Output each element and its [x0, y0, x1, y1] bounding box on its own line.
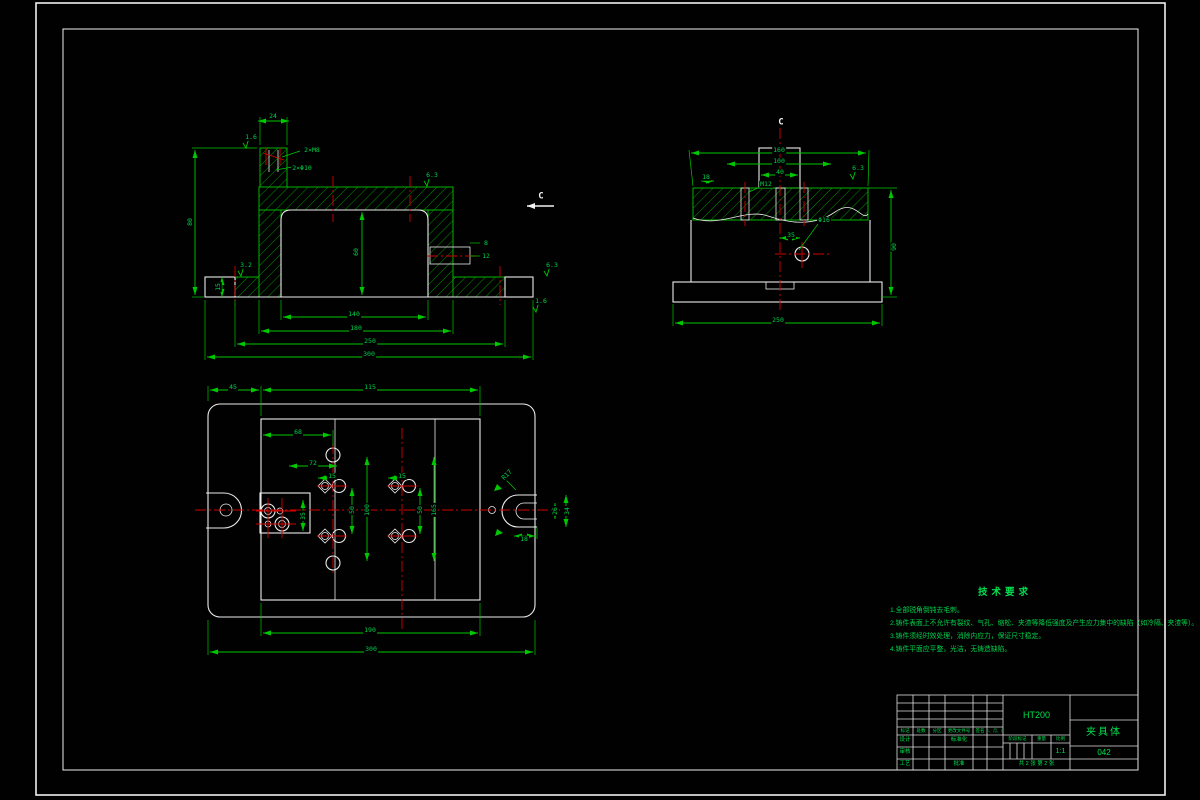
finish-mark	[494, 484, 502, 491]
dim-label: 24	[268, 113, 278, 120]
dim-label: 18	[519, 536, 529, 543]
dim-label: 35	[786, 232, 796, 239]
dim-label: 1.6	[244, 134, 258, 141]
dim-label: 140	[347, 311, 361, 318]
finish-mark	[495, 529, 503, 536]
dim-label: 50	[349, 505, 356, 515]
plate-section	[693, 188, 868, 220]
header-mark: 标记	[897, 727, 913, 735]
sheet-info: 共 2 张 第 2 张	[1003, 759, 1070, 770]
part-name-cell: 夹具体	[1070, 720, 1138, 746]
dim-label: 300	[364, 646, 378, 653]
dim-label: 8	[483, 240, 489, 247]
header-date: 年、月、日	[987, 727, 1003, 735]
plan-view	[195, 386, 566, 655]
dim-label: Φ16	[817, 217, 831, 224]
dim-label: 60	[353, 247, 360, 257]
dim-label: 180	[349, 325, 363, 332]
left-flange-section	[235, 277, 259, 297]
approve-label: 批准	[945, 759, 973, 770]
dim-label: 6.3	[425, 172, 439, 179]
dim-label: 2×Φ10	[291, 165, 313, 172]
dim-label: 300	[362, 351, 376, 358]
dim-label: 3.2	[239, 262, 253, 269]
dim-label: 15	[215, 282, 222, 292]
dim-label: 190	[363, 627, 377, 634]
tech-note-line: 1.全部锐角倒钝去毛刺。	[890, 604, 1158, 617]
drawing-canvas: .ol{stroke:#ececec;fill:none;stroke-widt…	[0, 0, 1200, 800]
dim-label: 6.3	[545, 262, 559, 269]
tech-note-line: 3.铸件须经时效处理，消除内应力，保证尺寸稳定。	[890, 630, 1158, 643]
dim-label: 40	[775, 169, 785, 176]
dim-label: 15	[327, 473, 337, 480]
tech-notes-list: 1.全部锐角倒钝去毛刺。2.铸件表面上不允许有裂纹、气孔、缩松、夹渣等降低强度及…	[890, 604, 1158, 656]
header-signature: 签名	[973, 727, 987, 735]
material-cell: HT200	[1003, 695, 1070, 735]
tech-note-line: 2.铸件表面上不允许有裂纹、气孔、缩松、夹渣等降低强度及产生应力集中的缺陷（如冷…	[890, 617, 1158, 630]
front-section-view	[192, 117, 557, 360]
dim-label: 100	[772, 158, 786, 165]
dim-label: 68	[293, 429, 303, 436]
dim-label: 18	[701, 174, 711, 181]
dim-label: 45	[228, 384, 238, 391]
dim-label: 15	[397, 473, 407, 480]
left-wall-section	[259, 210, 281, 297]
dim-label: 250	[771, 317, 785, 324]
dim-label: 72	[308, 460, 318, 467]
scale-value: 1:1	[1051, 743, 1070, 759]
right-wall-section	[428, 210, 453, 297]
stage-label: 阶段标记	[1003, 735, 1032, 743]
scale-label: 比例	[1051, 735, 1070, 743]
dim-label: 6.3	[851, 165, 865, 172]
base-plate	[673, 282, 882, 302]
left-u-slot	[206, 493, 242, 528]
dim-label: 35	[300, 511, 307, 521]
dim-label: C	[537, 193, 544, 202]
process-label: 工艺	[897, 759, 913, 770]
top-plate-section	[259, 187, 453, 210]
base-outline	[208, 404, 535, 617]
dim-label: C	[777, 119, 784, 128]
check-label: 审核	[897, 747, 913, 759]
dim-label: 50	[417, 505, 424, 515]
section-cut-mark	[527, 203, 554, 209]
dim-label: 80	[187, 217, 194, 227]
right-flange-section	[453, 277, 505, 297]
dim-label: 90	[891, 242, 898, 252]
dim-label: 165	[431, 503, 438, 517]
cad-sheet: .ol{stroke:#ececec;fill:none;stroke-widt…	[0, 0, 1200, 800]
standardize-label: 标准化	[945, 735, 973, 747]
dim-label: 34	[564, 506, 571, 516]
technical-requirements: 技术要求 1.全部锐角倒钝去毛刺。2.铸件表面上不允许有裂纹、气孔、缩松、夹渣等…	[890, 584, 1158, 656]
dim-label: 12	[481, 253, 491, 260]
dim-label: 160	[772, 147, 786, 154]
tech-notes-title: 技术要求	[890, 584, 1120, 598]
dim-label: 115	[363, 384, 377, 391]
dim-label: 100	[364, 503, 371, 517]
dim-label: 2×M8	[303, 147, 321, 154]
header-count: 处数	[913, 727, 929, 735]
drawing-frame	[36, 3, 1165, 795]
dim-label: M12	[759, 181, 773, 188]
drawing-number-cell: 042	[1070, 746, 1138, 759]
dim-label: 26	[552, 506, 559, 516]
header-change-doc: 更改文件号	[945, 727, 973, 735]
dim-label: 1.6	[534, 298, 548, 305]
weight-label: 重量	[1032, 735, 1051, 743]
boss-section	[260, 148, 287, 187]
header-zone: 分区	[929, 727, 945, 735]
design-label: 设计	[897, 735, 913, 747]
tech-note-line: 4.铸件平面应平整，光洁，无铸造缺陷。	[890, 643, 1158, 656]
dim-label: 250	[363, 338, 377, 345]
right-u-slot	[489, 495, 538, 527]
